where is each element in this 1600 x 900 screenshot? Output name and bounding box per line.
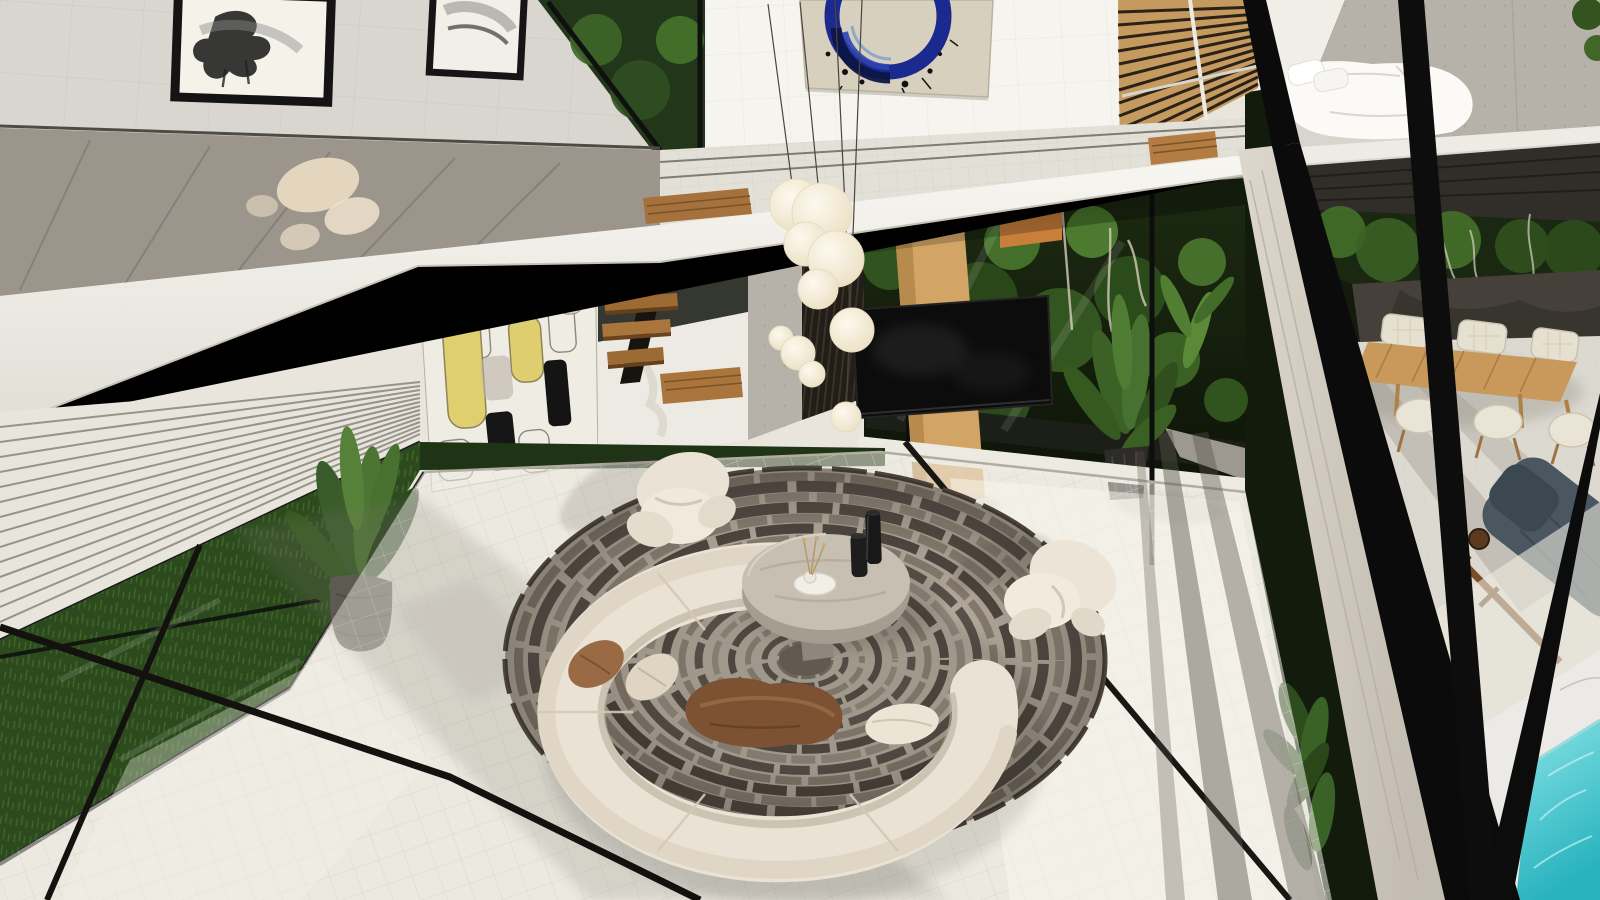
pendant-globe [831, 402, 861, 432]
balustrade-reflection-blob [246, 195, 278, 217]
pendant-globe [830, 308, 874, 352]
corner-leafs [656, 16, 704, 64]
pendant-globe [799, 361, 825, 387]
framed-artwork-2 [426, 0, 529, 81]
blue-circle-artwork [800, 0, 993, 99]
panel-yellow-2 [508, 315, 545, 383]
panel-grey [480, 355, 514, 401]
draped-throw [685, 678, 842, 748]
corner-leafs [610, 60, 670, 120]
render-scene [0, 0, 1600, 900]
pendant-globe [798, 269, 838, 309]
lounger-wheel [1469, 529, 1489, 549]
render-viewport [0, 0, 1600, 900]
framed-artwork-1 [170, 0, 336, 107]
tv-on-column [852, 296, 1052, 418]
